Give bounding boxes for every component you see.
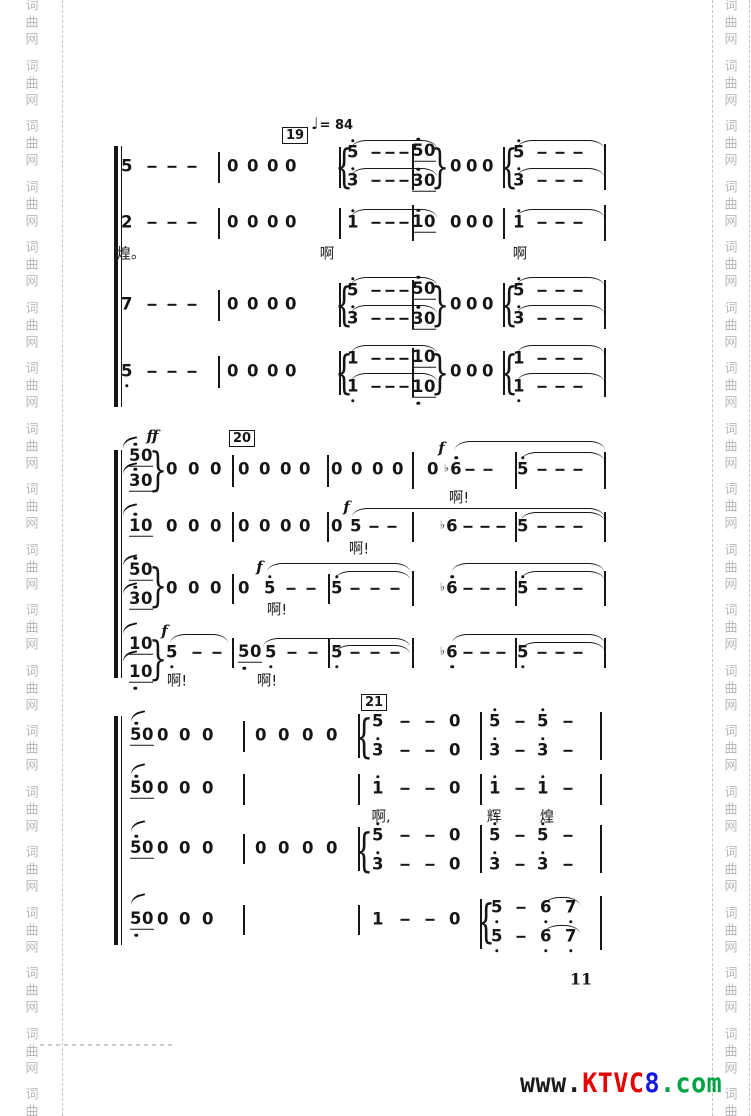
note-value: 5 [517,580,529,598]
note-value: 0 [166,580,178,598]
note-value: 0 [482,363,494,381]
watermark-char: 词 [25,1028,38,1041]
note-value: 0 [247,158,259,176]
note: 5 [537,827,549,845]
duration-dash [372,386,381,388]
duration-dash [538,386,547,388]
note-value: 1 [489,780,501,798]
octave-dot-above [517,277,520,280]
watermark-char: 网 [25,760,38,773]
rest: 0 [449,911,461,929]
watermark-char: 曲 [724,1045,737,1058]
note-value: 5 [513,144,525,162]
watermark-char: 曲 [25,1106,38,1116]
duration-dash [516,788,525,790]
note: 30 [412,311,436,330]
duration-dash [388,526,397,528]
duration-dash [556,358,565,360]
note-value: 0 [179,840,191,858]
watermark-char: 网 [724,639,737,652]
duration-dash [556,469,565,471]
note-value: 0 [227,214,239,232]
note-value: 1 [372,911,384,929]
duration-dash [400,290,409,292]
duration-dash [556,290,565,292]
note: 5 [517,580,529,598]
watermark-char: 词 [724,423,737,436]
note-value: 0 [202,840,214,858]
note-value: 5 [121,158,133,176]
note: 1 [513,214,525,232]
watermark-char: 网 [25,699,38,712]
note-value: 50 [412,143,436,162]
rest: 0 [482,158,494,176]
duration-dash [148,222,157,224]
note-value: 0 [450,158,462,176]
barline [243,834,245,864]
duration-dash [386,358,395,360]
lyric-text: 啊! [267,599,287,620]
watermark-char: 词 [25,1089,38,1102]
note-value: 0 [247,214,259,232]
watermark-char: 曲 [25,198,38,211]
duration-dash [188,166,197,168]
watermark-char: 曲 [724,743,737,756]
duration-dash [426,919,435,921]
barline [218,208,220,239]
duration-dash [538,180,547,182]
rest: 0 [157,840,169,858]
tie-slur [517,140,604,149]
note: 5 [517,461,529,479]
tie-slur [517,277,604,286]
duration-dash [484,469,493,471]
tempo-marking: ♩= 84 [311,114,353,133]
rest: 0 [179,911,191,929]
watermark-char: 曲 [724,138,737,151]
duration-dash [148,304,157,306]
barline [604,512,606,542]
barline [327,455,329,487]
watermark-char: 曲 [724,77,737,90]
note: 10 [129,664,153,683]
rehearsal-mark: 19 [282,127,308,144]
note-value: 0 [157,727,169,745]
rest: 0 [157,727,169,745]
octave-dot-below [517,399,520,402]
rest: 0 [331,461,343,479]
watermark-char: 词 [25,847,38,860]
dynamic-marking: f [343,498,348,516]
note-value: 0 [238,518,250,536]
watermark-char: 词 [724,363,737,376]
note-value: 0 [179,911,191,929]
duration-dash [556,386,565,388]
note-value: 0 [278,840,290,858]
watermark-char: 网 [724,699,737,712]
note: 50 [130,727,154,746]
duration-dash [400,386,409,388]
page-number: 11 [570,970,592,989]
note: 5 [517,518,529,536]
duration-dash [188,222,197,224]
note-value: 3 [537,856,549,874]
duration-dash [574,526,583,528]
note-value: 10 [412,214,436,233]
rest: 0 [179,780,191,798]
note-value: 0 [278,727,290,745]
rest: 0 [188,461,200,479]
note-value: 0 [166,518,178,536]
barline [604,144,606,190]
duration-dash [497,588,506,590]
barline [480,825,482,873]
octave-dot-above [493,737,496,740]
barline [339,208,341,239]
note: 5 [491,928,503,946]
octave-dot-above [417,208,420,211]
tie-slur [517,305,604,314]
duration-dash [517,936,526,938]
octave-dot-above [541,851,544,854]
watermark-char: 网 [25,34,38,47]
watermark-char: 网 [25,518,38,531]
octave-dot-below [569,949,572,952]
note-value: 3 [347,310,359,328]
note-value: 0 [202,727,214,745]
duration-dash [538,469,547,471]
note: 5 [264,580,276,598]
watermark-char: 曲 [724,198,737,211]
octave-dot-above [135,721,138,724]
duration-dash [386,222,395,224]
note: 50 [129,448,153,467]
lyric-text: 啊! [257,670,277,691]
note: 6 [540,899,552,917]
note-value: 5 [489,827,501,845]
note-value: 50 [130,780,154,799]
watermark-char: 网 [724,578,737,591]
tie-slur [335,645,410,654]
watermark-char: 曲 [724,924,737,937]
note-value: 0 [188,580,200,598]
watermark-char: 曲 [25,924,38,937]
octave-dot-below [521,665,524,668]
watermark-char: 词 [25,484,38,497]
note: 5 [350,518,362,536]
duration-dash [400,318,409,320]
octave-dot-below [269,665,272,668]
note: 3 [513,172,525,190]
octave-dot-above [135,774,138,777]
barline [600,825,602,873]
watermark-char: 网 [25,457,38,470]
note: 50 [412,281,436,300]
rest: 0 [238,461,250,479]
flat-accidental: ♭ [444,461,450,474]
duration-dash [574,588,583,590]
note-value: 5 [491,899,503,917]
note-value: 0 [392,461,404,479]
duration-dash [538,358,547,360]
watermark-char: 曲 [724,501,737,514]
duration-dash [556,526,565,528]
rest: 0 [466,296,478,314]
note: 3 [372,742,384,760]
watermark-char: 曲 [724,622,737,635]
octave-dot-below [417,401,420,404]
rest: 0 [280,461,292,479]
rest: 0 [210,518,222,536]
note: 3 [537,742,549,760]
watermark-char: 网 [724,215,737,228]
duration-dash [497,652,506,654]
note-value: 0 [299,461,311,479]
rest: 0 [255,840,267,858]
watermark-char: 词 [25,121,38,134]
dynamic-marking: ff [147,427,158,445]
note: 50 [129,562,153,581]
rest: 0 [326,727,338,745]
rest: 0 [450,296,462,314]
note-value: 5 [347,282,359,300]
rest: 0 [202,911,214,929]
barline [218,152,220,183]
watermark-char: 曲 [25,77,38,90]
rest: 0 [247,363,259,381]
note-value: 0 [210,580,222,598]
octave-dot-above [517,305,520,308]
duration-dash [386,386,395,388]
note-value: 0 [259,461,271,479]
note: ♭6 [440,580,458,598]
note-value: 0 [466,363,478,381]
note-value: 1 [347,350,359,368]
note: 5 [513,282,525,300]
barline [243,721,245,752]
rest: 0 [449,780,461,798]
watermark-char: 曲 [724,561,737,574]
note-value: 0 [227,363,239,381]
watermark-char: 词 [25,665,38,678]
rest: 0 [247,214,259,232]
lyric-text: 啊! [167,670,187,691]
octave-dot-above [134,467,137,470]
note: 1 [347,378,359,396]
duration-dash [168,222,177,224]
octave-dot-below [495,949,498,952]
watermark-www: www. [520,1068,582,1098]
barline [600,896,602,950]
duration-dash [574,358,583,360]
octave-dot-above [376,851,379,854]
duration-dash [497,526,506,528]
watermark-char: 网 [724,1002,737,1015]
note-value: 5 [166,644,178,662]
barline [604,638,606,668]
duration-dash [370,526,379,528]
octave-dot-above [134,585,137,588]
duration-dash [481,526,490,528]
rest: 0 [238,580,250,598]
rest: 0 [227,296,239,314]
tie-continuation-hook [129,893,147,906]
barline [232,455,234,487]
barline [480,774,482,805]
duration-dash [538,318,547,320]
note: 5 [347,282,359,300]
note-value: 0 [331,461,343,479]
note-value: 0 [247,296,259,314]
note: 10 [129,518,153,537]
watermark-char: 曲 [25,440,38,453]
duration-dash [481,652,490,654]
rest: 0 [482,296,494,314]
note-value: 2 [121,214,133,232]
tie-slur [521,642,604,651]
note: 5 [265,644,277,662]
note: 5 [331,644,343,662]
barline [480,712,482,760]
rest: 0 [285,363,297,381]
barline [604,348,606,397]
note-value: 0 [285,296,297,314]
duration-dash [386,290,395,292]
note-value: 5 [517,461,529,479]
duration-dash [538,152,547,154]
watermark-char: 词 [724,544,737,557]
note-value: 0 [285,214,297,232]
duration-dash [564,864,573,866]
rest: 0 [188,518,200,536]
rest: 0 [166,580,178,598]
note-value: 0 [255,727,267,745]
watermark-char: 网 [25,881,38,894]
note-value: 3 [372,856,384,874]
note: 1 [537,780,549,798]
duration-dash [372,318,381,320]
octave-dot-below [134,686,137,689]
octave-dot-above [351,305,354,308]
rest: 0 [259,461,271,479]
duration-dash [401,864,410,866]
note-value: 0 [202,780,214,798]
note-value: 0 [238,580,250,598]
octave-dot-below [569,920,572,923]
rest: 0 [450,158,462,176]
duration-dash [426,835,435,837]
note-value: 0 [449,742,461,760]
note-value: 0 [238,461,250,479]
note-value: 0 [157,911,169,929]
note-value: 10 [412,379,436,398]
note-value: 50 [130,840,154,859]
lyric-text: 煌。 [117,243,146,264]
barline [218,290,220,321]
octave-dot-below [335,665,338,668]
note-value: 0 [482,296,494,314]
rest: 0 [449,856,461,874]
watermark-char: 网 [25,578,38,591]
duration-dash [288,652,297,654]
watermark-char: 词 [724,181,737,194]
note: 5 [489,827,501,845]
rehearsal-mark: 21 [361,694,387,711]
watermark-char: 词 [724,968,737,981]
note-value: 0 [351,461,363,479]
tie-slur [170,634,228,643]
duration-dash [556,318,565,320]
duration-dash [309,652,318,654]
rest: 0 [466,158,478,176]
note: ♭6 [444,461,462,479]
watermark-char: 网 [724,881,737,894]
octave-dot-above [134,442,137,445]
note: 5 [537,713,549,731]
barline [604,452,606,489]
note-value: 3 [513,310,525,328]
rest: 0 [450,214,462,232]
barline [604,571,606,606]
rest: 0 [210,461,222,479]
flat-accidental: ♭ [440,580,446,593]
watermark-char: 网 [724,820,737,833]
note-value: 1 [372,780,384,798]
note-value: 1 [513,378,525,396]
note-value: 5 [513,282,525,300]
note-value: 3 [372,742,384,760]
duration-dash [386,152,395,154]
rest: 0 [449,827,461,845]
note-value: 0 [427,461,439,479]
watermark-char: 词 [25,60,38,73]
duration-dash [574,386,583,388]
note-value: 3 [537,742,549,760]
note-value: 5 [517,644,529,662]
duration-dash [538,222,547,224]
note-value: 50 [238,644,262,663]
duration-dash [372,222,381,224]
octave-dot-above [541,737,544,740]
rest: 0 [466,363,478,381]
tie-continuation-hook [129,820,147,833]
note: 30 [129,473,153,492]
duration-dash [574,180,583,182]
note-value: 30 [129,473,153,492]
watermark-char: 网 [25,941,38,954]
rest: 0 [450,363,462,381]
octave-dot-above [517,139,520,142]
note: 6 [540,928,552,946]
note-value: 0 [372,461,384,479]
duration-dash [400,152,409,154]
note: 50 [130,911,154,930]
duration-dash [372,358,381,360]
note-value: 50 [130,727,154,746]
note-value: 0 [466,158,478,176]
note-value: 0 [210,518,222,536]
rest: 0 [179,727,191,745]
rest: 0 [267,296,279,314]
note-value: 6 [540,899,552,917]
note-value: 5 [517,518,529,536]
watermark-char: 词 [724,242,737,255]
note-value: 50 [129,562,153,581]
note: 10 [412,349,436,368]
rest: 0 [449,713,461,731]
note-value: 6 [446,518,458,536]
tie-slur [455,441,605,450]
